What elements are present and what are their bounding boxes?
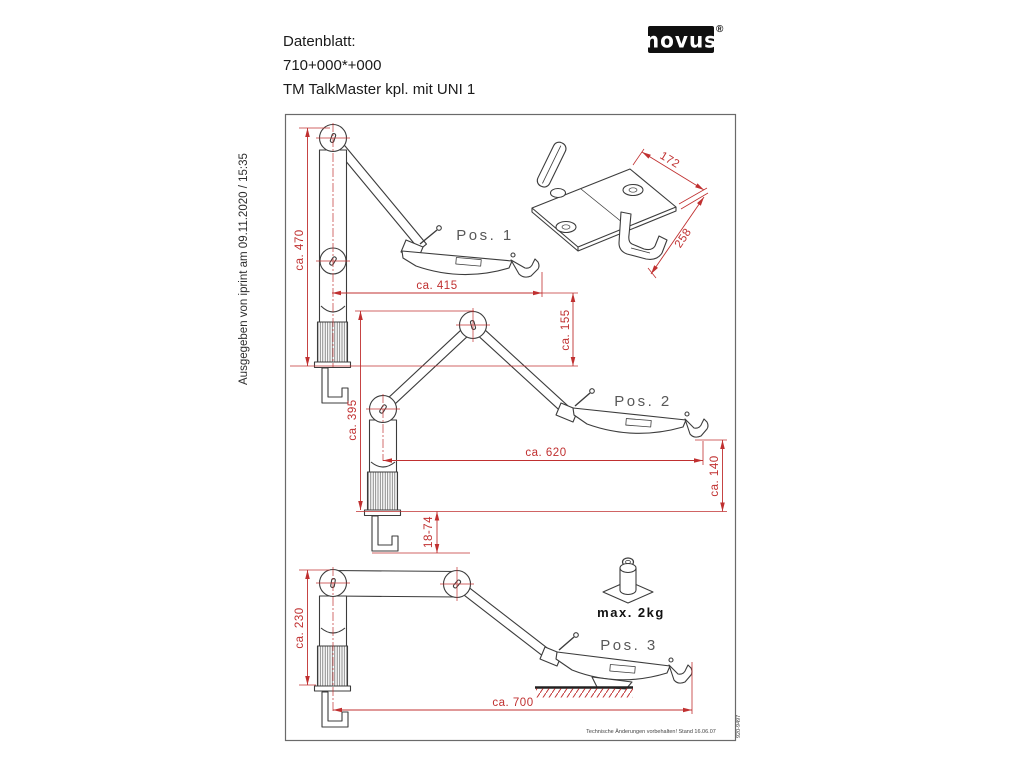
pos3-clamp-grip [318,646,348,686]
registered-trademark-icon: ® [716,24,723,35]
title-block: Datenblatt: 710+000*+000 TM TalkMaster k… [283,30,475,102]
dim-clamp-range: 18-74 [423,516,435,548]
pos2-arm-drawing [365,312,709,552]
dim-pos1-tray-height: ca. 155 [560,309,572,350]
print-info-note: Ausgegeben von iprint am 09.11.2020 / 15… [238,153,250,385]
pos1-clamp-grip [318,322,348,362]
doc-number: 920-9497 [736,715,742,738]
handset-prong [535,140,568,189]
dim-pos2-reach: ca. 620 [525,447,566,459]
novus-logo-text: novus [645,27,717,52]
article-number: 710+000*+000 [283,54,475,78]
dim-pos2-height: ca. 395 [347,399,359,440]
pos1-label: Pos. 1 [456,227,514,244]
pos2-label: Pos. 2 [614,393,672,410]
pos2-desk-clamp [372,516,398,551]
footer-note: Technische Änderungen vorbehalten! Stand… [586,728,716,735]
product-name: TM TalkMaster kpl. mit UNI 1 [283,78,475,102]
doc-type-label: Datenblatt: [283,30,475,54]
pos2-upper-arm [380,322,476,413]
dim-pos1-height: ca. 470 [294,229,306,270]
dim-pos3-height: ca. 230 [294,607,306,648]
max-load-label: max. 2kg [597,605,665,620]
pos3-forearm [454,580,557,662]
dim-pos3-reach: ca. 700 [492,697,533,709]
datasheet-page: Datenblatt: 710+000*+000 TM TalkMaster k… [0,0,1024,768]
dim-plate-depth: 258 [673,226,695,250]
novus-logo: novus [648,26,714,53]
phone-plate-drawing [532,140,676,259]
max-load-weight-icon [603,558,653,603]
dim-plate-width: 172 [658,150,682,171]
pos2-clamp-grip [368,472,398,510]
dim-pos2-tray-height: ca. 140 [709,455,721,496]
ground-hatch [536,689,633,698]
dim-pos1-reach: ca. 415 [416,280,457,292]
pos3-desk-clamp [322,692,348,727]
pos2-forearm [470,322,571,416]
pos3-label: Pos. 3 [600,637,658,654]
pos1-desk-clamp [322,368,348,403]
technical-drawing: ca. 470 ca. 415 ca. 155 172 258 ca. 395 … [0,0,1024,768]
